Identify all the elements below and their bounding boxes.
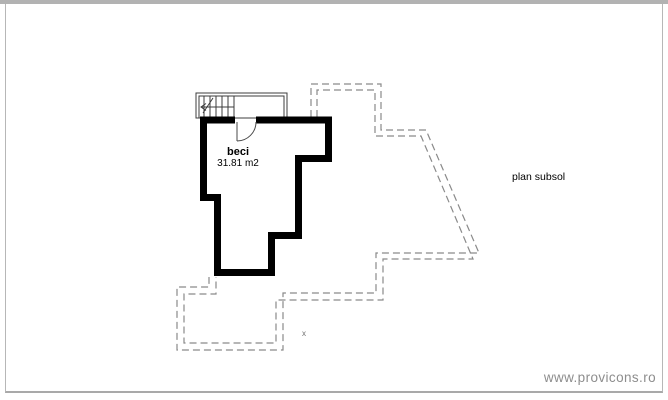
room-label: beci 31.81 m2 xyxy=(199,146,277,170)
floor-plan-drawing xyxy=(0,0,668,400)
floor-plan-page: beci 31.81 m2 plan subsol x www.provicon… xyxy=(0,0,668,400)
room-area: 31.81 m2 xyxy=(199,158,277,170)
plan-title: plan subsol xyxy=(512,171,565,183)
watermark: www.provicons.ro xyxy=(544,370,656,385)
staircase-icon xyxy=(196,93,287,118)
door-swing-icon xyxy=(237,122,256,141)
basement-wall-outline xyxy=(204,120,329,273)
x-marker: x xyxy=(302,329,306,338)
room-name: beci xyxy=(199,146,277,158)
